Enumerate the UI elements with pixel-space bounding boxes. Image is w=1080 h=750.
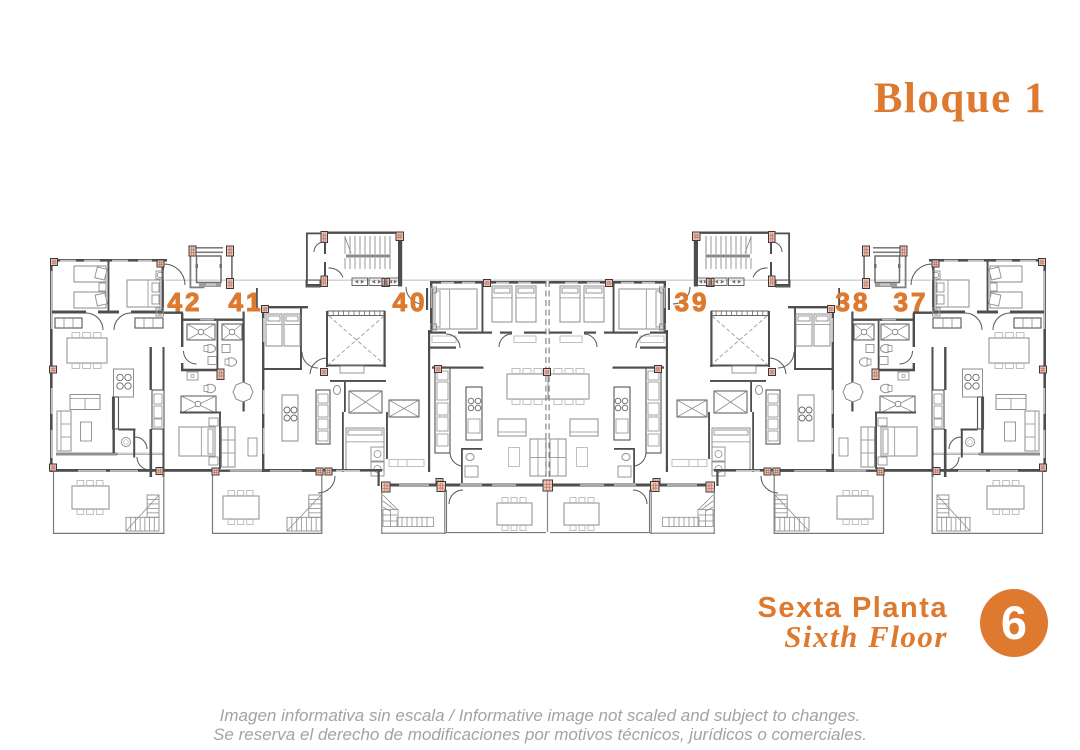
svg-text:Imagen informativa sin escala: Imagen informativa sin escala / Informat…: [220, 706, 861, 725]
svg-text:Sixth Floor: Sixth Floor: [784, 619, 948, 654]
svg-text:40: 40: [393, 287, 428, 317]
svg-text:41: 41: [229, 287, 264, 317]
svg-text:39: 39: [675, 287, 710, 317]
svg-text:37: 37: [894, 287, 929, 317]
svg-text:42: 42: [168, 287, 203, 317]
svg-text:38: 38: [836, 287, 871, 317]
svg-text:Se reserva el derecho de modif: Se reserva el derecho de modificaciones …: [213, 725, 867, 744]
svg-text:6: 6: [1001, 596, 1027, 649]
svg-text:Bloque 1: Bloque 1: [874, 75, 1047, 122]
